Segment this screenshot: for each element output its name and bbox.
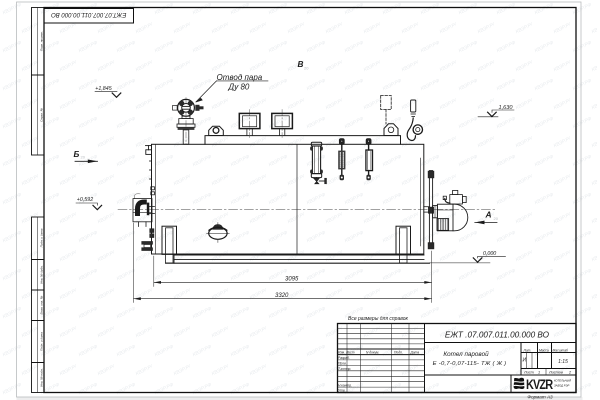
svg-text:Масса: Масса [539,349,549,353]
svg-text:Взам. инв. №: Взам. инв. № [40,295,44,314]
svg-text:КОТЕЛЬНЫЙ: КОТЕЛЬНЫЙ [554,379,571,383]
svg-text:1: 1 [538,371,540,375]
svg-text:Масштаб: Масштаб [553,349,569,353]
svg-text:1:15: 1:15 [558,359,568,365]
svg-text:Подп. и дата: Подп. и дата [40,332,44,351]
svg-text:Листов: Листов [548,371,563,375]
svg-text:Инв. № дубл.: Инв. № дубл. [40,265,44,284]
svg-text:+0,592: +0,592 [77,197,93,203]
svg-text:0,000: 0,000 [483,251,496,257]
svg-text:Подп.: Подп. [394,350,403,354]
svg-text:Е -0,7-0,07-115- ТЖ ( Ж ): Е -0,7-0,07-115- ТЖ ( Ж ) [433,361,507,367]
svg-text:Пров.: Пров. [338,362,347,366]
svg-text:N докум.: N докум. [366,350,379,354]
svg-text:Подп. и дата: Подп. и дата [40,228,44,247]
svg-text:3320: 3320 [275,293,289,299]
svg-text:В: В [298,60,304,69]
svg-text:Дата: Дата [410,350,420,354]
svg-text:KVZR: KVZR [526,377,553,393]
svg-text:Лист: Лист [523,371,534,375]
svg-text:ЕЖТ.07.007.011.00.000 ВО: ЕЖТ.07.007.011.00.000 ВО [51,11,127,18]
svg-text:Котел паровой: Котел паровой [443,350,489,358]
svg-text:И: И [523,358,527,364]
svg-text:20: 20 [494,216,499,221]
svg-text:Лит.: Лит. [523,349,532,353]
svg-text:Ду 80: Ду 80 [228,83,250,92]
svg-text:Все размеры для справок: Все размеры для справок [348,316,409,322]
svg-text:Н.контр.: Н.контр. [338,383,352,387]
svg-text:ЗАВОД РЭР: ЗАВОД РЭР [554,383,569,387]
svg-text:Перв. примен.: Перв. примен. [40,31,44,51]
svg-text:Разраб.: Разраб. [338,356,350,360]
svg-text:20: 20 [81,155,86,160]
svg-text:Справ. №: Справ. № [40,107,44,121]
svg-text:3095: 3095 [285,277,299,283]
svg-text:+1,845: +1,845 [95,86,111,92]
svg-text:Инв. № подл.: Инв. № подл. [40,368,44,387]
svg-text:20: 20 [304,66,309,71]
svg-text:А: А [485,210,492,220]
svg-text:ЕЖТ .07.007.011.00.000 ВО: ЕЖТ .07.007.011.00.000 ВО [445,331,550,340]
svg-text:Б: Б [74,150,80,159]
svg-text:Утв.: Утв. [338,389,346,393]
svg-text:Формат А3: Формат А3 [527,394,553,399]
svg-text:Т.контр.: Т.контр. [338,367,351,371]
svg-text:Изм. Лист: Изм. Лист [338,350,355,354]
svg-text:Отвод пара: Отвод пара [217,73,263,82]
